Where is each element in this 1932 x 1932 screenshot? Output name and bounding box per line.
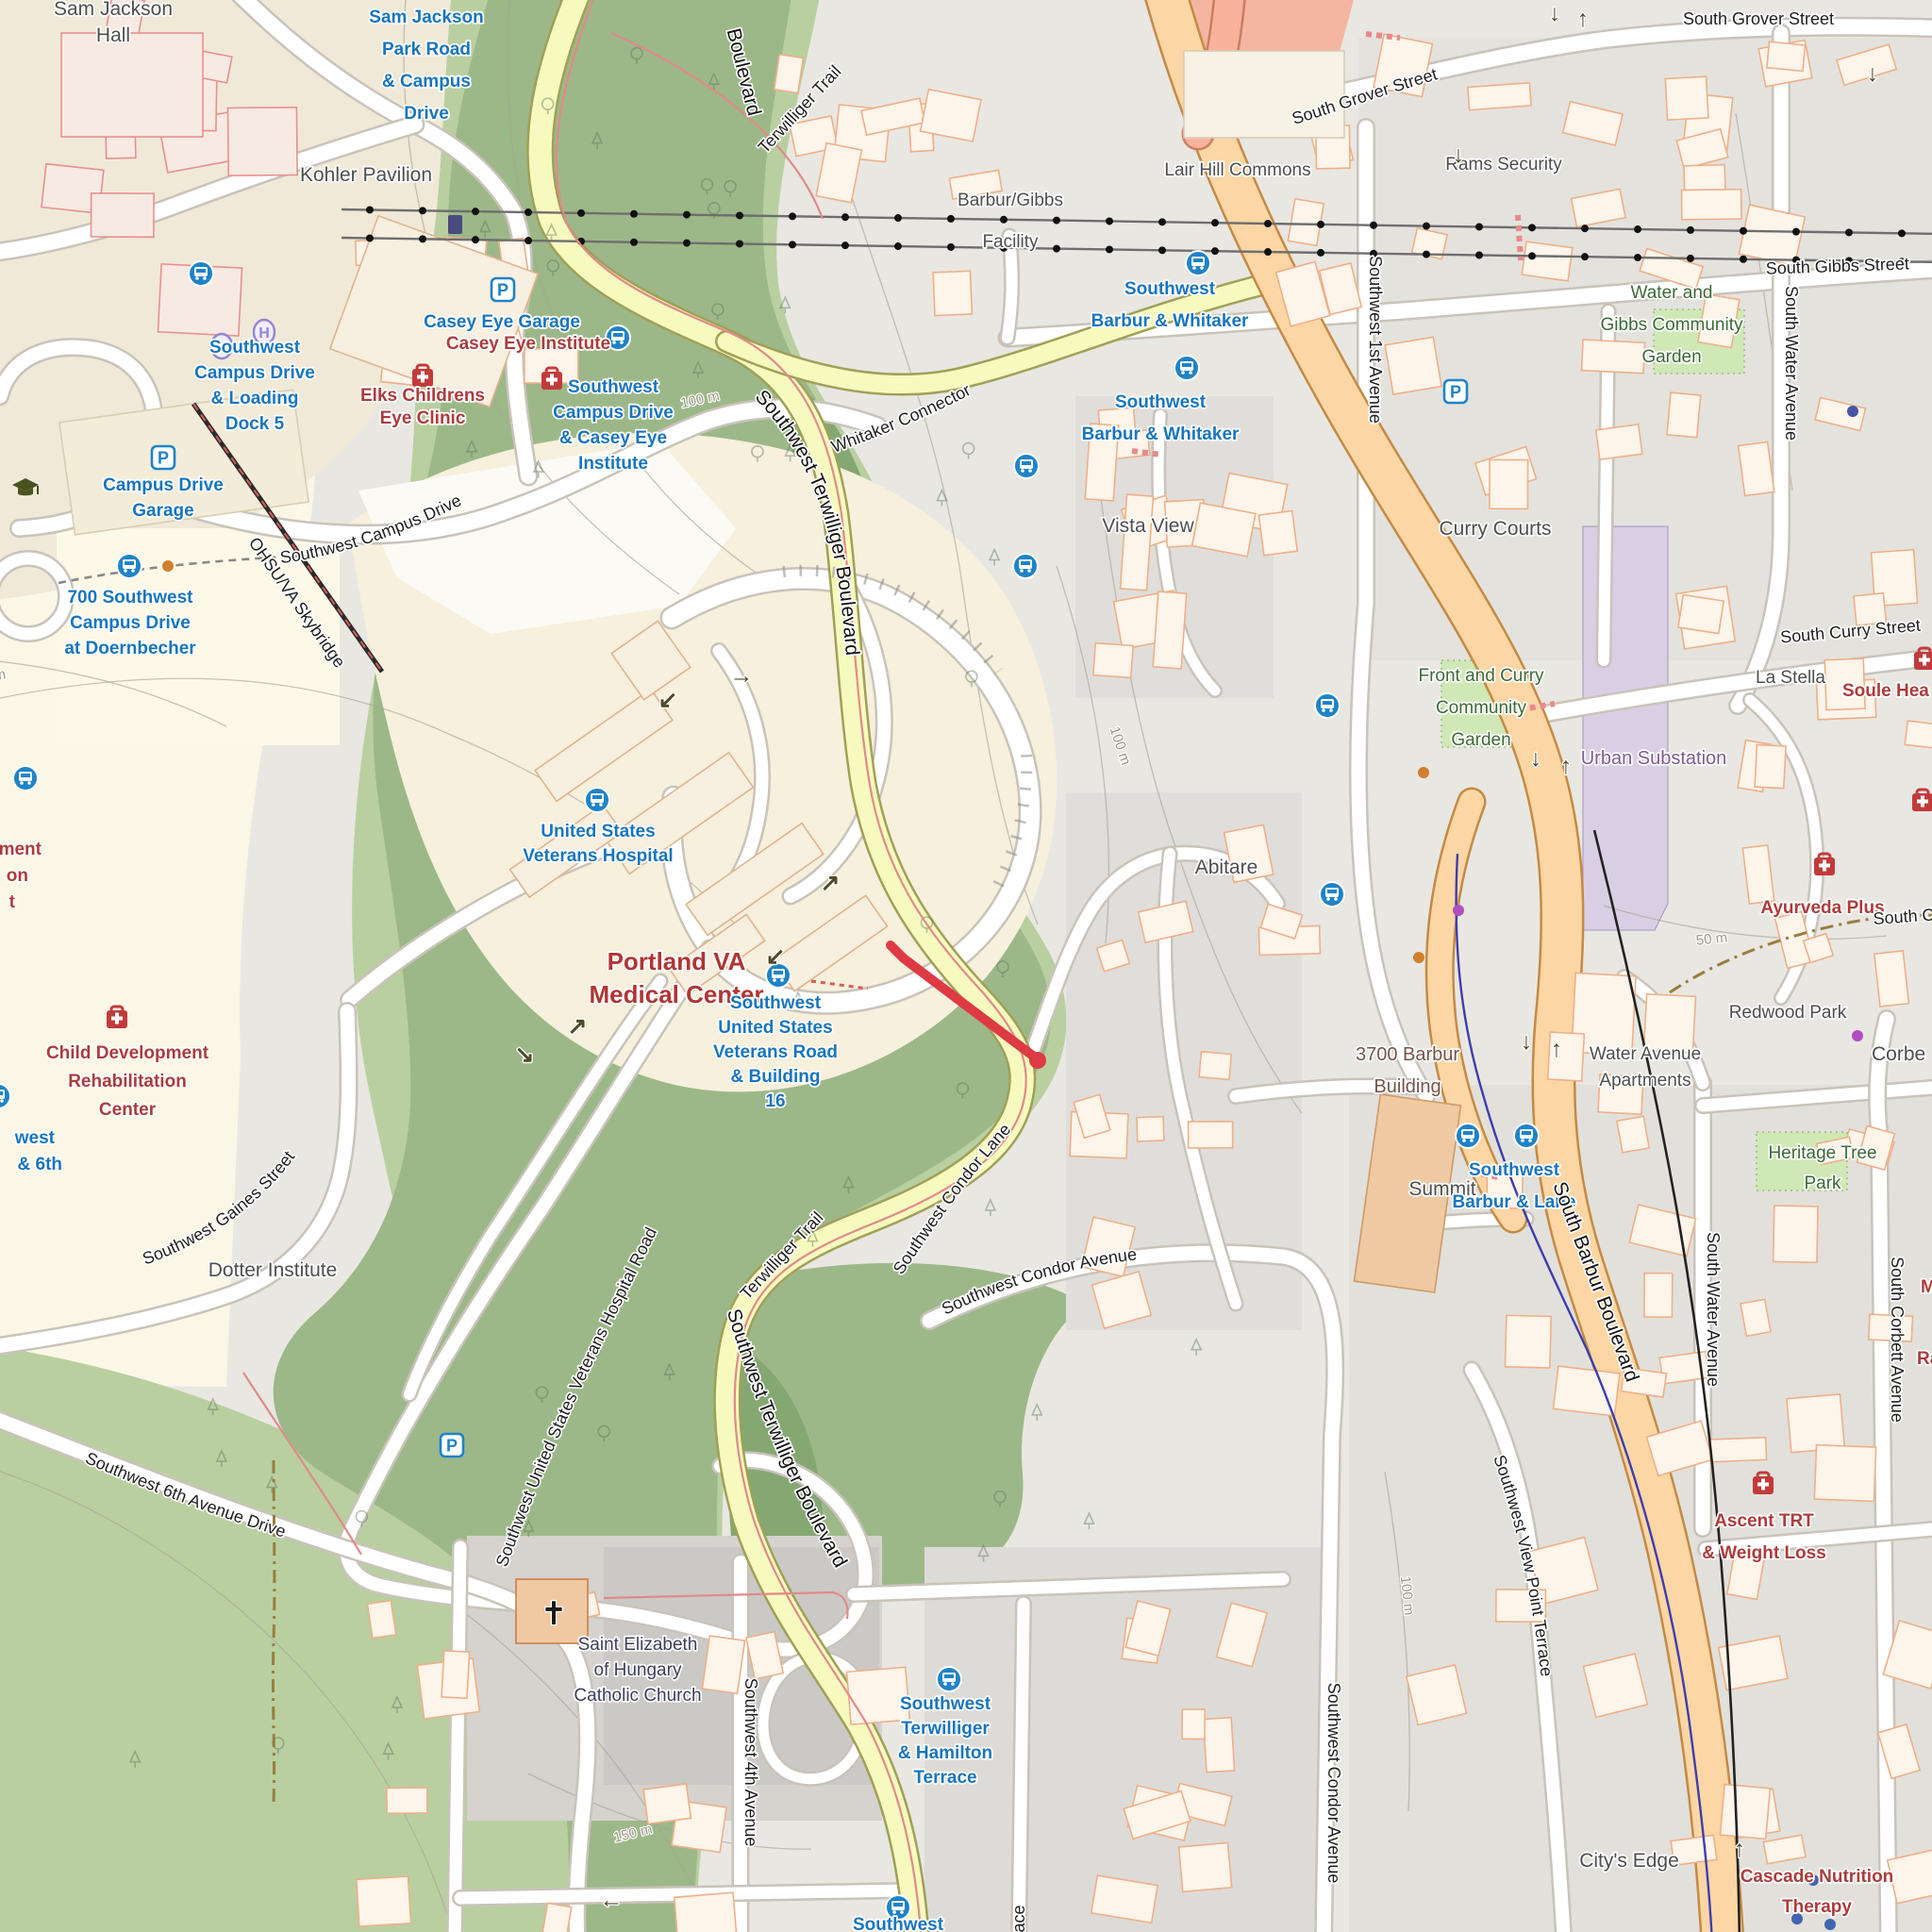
aerial-tram-station-icon: [448, 215, 462, 234]
oneway-arrow: ↙: [658, 687, 678, 713]
bus-stop-icon[interactable]: [13, 766, 38, 791]
parking-icon: P: [152, 446, 175, 469]
label-ascent-trt: Ascent TRT: [1714, 1511, 1814, 1531]
label-ment-partial: t: [9, 892, 16, 912]
label-barbur-gibbs-facility: Barbur/Gibbs: [958, 191, 1063, 210]
stop-terwilliger-hamilton[interactable]: & Hamilton: [898, 1743, 992, 1763]
street-south-c-partial: South C: [1873, 906, 1932, 928]
poi-dot: [1453, 905, 1464, 916]
stop-campus-700[interactable]: 700 Southwest: [67, 588, 193, 608]
bus-stop-icon[interactable]: [937, 1667, 961, 1691]
parking-icon: P: [441, 1434, 463, 1457]
label-front-curry: Front and Curry: [1418, 666, 1544, 686]
street-sw-4th-ave: Southwest 4th Avenue: [741, 1678, 760, 1847]
stop-sw-campus-loading[interactable]: Dock 5: [225, 414, 285, 434]
stop-barbur-whitaker-1[interactable]: Barbur & Whitaker: [1091, 311, 1249, 331]
bus-stop-icon[interactable]: [189, 261, 213, 286]
street-sw-condor-ave-s: Southwest Condor Avenue: [1324, 1683, 1343, 1884]
stop-west-6th-partial[interactable]: west: [14, 1128, 56, 1148]
label-barbur-gibbs-facility: Facility: [982, 232, 1039, 252]
label-ra-partial: Ra: [1917, 1349, 1932, 1369]
stop-campus-700[interactable]: at Doernbecher: [64, 639, 196, 658]
label-redwood-park: Redwood Park: [1729, 1003, 1847, 1023]
stop-sw-veterans-rd16[interactable]: 16: [765, 1091, 785, 1111]
poi-dot: [1852, 1030, 1863, 1041]
stop-terwilliger-hamilton[interactable]: Terrace: [913, 1768, 976, 1788]
label-child-development: Rehabilitation: [68, 1072, 187, 1091]
label-cascade-nutrition: Therapy: [1782, 1897, 1852, 1917]
label-la-stella: La Stella: [1756, 668, 1825, 688]
label-water-gibbs-garden: Garden: [1641, 347, 1701, 367]
bus-stop-icon[interactable]: [1320, 882, 1344, 907]
bus-stop-icon[interactable]: [1014, 454, 1039, 478]
label-3700-barbur: 3700 Barbur: [1356, 1044, 1459, 1065]
oneway-arrow: ↓: [1453, 142, 1465, 168]
bus-stop-icon[interactable]: [117, 554, 142, 578]
label-lair-hill-commons: Lair Hill Commons: [1164, 160, 1310, 180]
label-elks-childrens: Elks Childrens: [360, 386, 485, 406]
label-soule-partial: Soule Hea: [1842, 681, 1929, 701]
street-south-water-n: South Water Avenue: [1782, 286, 1801, 441]
oneway-arrow: ↑: [1551, 1036, 1563, 1062]
stop-barbur-whitaker-2[interactable]: Southwest: [1115, 392, 1207, 412]
stop-us-veterans-hospital[interactable]: Veterans Hospital: [523, 846, 673, 866]
parking-icon: P: [1444, 380, 1467, 403]
label-child-development: Center: [99, 1100, 157, 1120]
svg-text:P: P: [158, 449, 169, 468]
svg-text:P: P: [446, 1437, 458, 1456]
label-water-ave-apts: Water Avenue: [1590, 1044, 1701, 1064]
stop-bottom-partial[interactable]: Southwest: [853, 1915, 944, 1932]
oneway-arrow: ↓: [1867, 60, 1879, 87]
stop-sam-jackson-park[interactable]: Drive: [404, 104, 449, 124]
stop-campus-drive-garage[interactable]: Campus Drive: [103, 475, 224, 495]
stop-sw-campus-loading[interactable]: Campus Drive: [194, 363, 315, 383]
poi-dot: [1824, 1919, 1836, 1930]
street-south-grover: South Grover Street: [1683, 9, 1834, 28]
oneway-arrow: ↓: [1521, 1028, 1533, 1055]
stop-sw-veterans-rd16[interactable]: & Building: [731, 1067, 821, 1087]
label-citys-edge: City's Edge: [1579, 1850, 1679, 1872]
stop-terwilliger-hamilton[interactable]: Southwest: [900, 1694, 991, 1714]
label-3700-barbur: Building: [1374, 1076, 1441, 1097]
street-south-corbett: South Corbett Avenue: [1888, 1257, 1907, 1423]
bus-stop-icon[interactable]: [1186, 251, 1210, 275]
map-canvas[interactable]: PPPPHH✝ Sam Jackson Hall Sam Jackson Par…: [0, 0, 1932, 1932]
stop-sw-veterans-rd16[interactable]: Southwest: [730, 993, 822, 1013]
stop-sam-jackson-park[interactable]: Sam Jackson: [369, 8, 483, 27]
label-water-ave-apts: Apartments: [1599, 1071, 1690, 1091]
parking-icon: P: [491, 278, 514, 301]
stop-sw-veterans-rd16[interactable]: Veterans Road: [713, 1042, 838, 1062]
label-sam-jackson-hall: Sam Jackson: [54, 0, 173, 20]
label-curry-courts: Curry Courts: [1439, 518, 1551, 540]
street-terrace-partial: ace: [1009, 1905, 1028, 1932]
label-vista-view: Vista View: [1102, 515, 1194, 537]
stop-campus-drive-garage[interactable]: Garage: [132, 501, 193, 521]
bus-stop-icon[interactable]: [1013, 554, 1038, 578]
label-abitare: Abitare: [1195, 857, 1258, 878]
label-urban-substation: Urban Substation: [1581, 748, 1727, 769]
oneway-arrow: ↑: [1734, 1836, 1746, 1862]
bus-stop-icon[interactable]: [1174, 356, 1199, 380]
stop-barbur-whitaker-1[interactable]: Southwest: [1124, 279, 1216, 299]
oneway-arrow: ↑: [1577, 6, 1590, 32]
street-south-water-s: South Water Avenue: [1704, 1232, 1723, 1387]
oneway-arrow: ↙: [766, 943, 786, 970]
street-sw-1st-ave: Southwest 1st Avenue: [1366, 256, 1385, 424]
svg-text:P: P: [497, 281, 508, 300]
label-dotter-institute: Dotter Institute: [208, 1259, 338, 1281]
stop-campus-700[interactable]: Campus Drive: [70, 613, 191, 633]
label-elks-childrens: Eye Clinic: [380, 408, 466, 428]
oneway-arrow: ←: [600, 1887, 624, 1913]
label-ayurveda: Ayurveda Plus: [1760, 898, 1884, 918]
label-saint-elizabeth: Catholic Church: [574, 1686, 701, 1706]
stop-sw-veterans-rd16[interactable]: United States: [718, 1018, 832, 1038]
stop-sw-campus-casey[interactable]: Southwest: [568, 377, 659, 397]
label-ment-partial: on: [7, 866, 28, 886]
stop-sw-campus-loading[interactable]: & Loading: [211, 389, 299, 408]
label-saint-elizabeth: of Hungary: [594, 1660, 682, 1680]
oneway-arrow: ↑: [1560, 753, 1573, 779]
stop-terwilliger-hamilton[interactable]: Terwilliger: [901, 1719, 990, 1739]
label-front-curry: Community: [1436, 698, 1527, 718]
map-base-layer: PPPPHH✝ Sam Jackson Hall Sam Jackson Par…: [0, 0, 1932, 1932]
label-ment-partial: ment: [0, 840, 42, 859]
stop-casey-eye-garage[interactable]: Casey Eye Garage: [424, 312, 580, 332]
label-casey-eye-institute: Casey Eye Institute: [446, 334, 610, 354]
poi-dot: [1418, 767, 1429, 778]
stop-sam-jackson-park[interactable]: & Campus: [382, 72, 471, 92]
stop-sw-campus-casey[interactable]: Institute: [578, 454, 648, 474]
stop-us-veterans-hospital[interactable]: United States: [541, 822, 655, 841]
svg-text:P: P: [1450, 383, 1461, 402]
stop-sw-campus-loading[interactable]: Southwest: [209, 338, 301, 358]
oneway-arrow: ↓: [1549, 0, 1561, 26]
oneway-arrow: ↘: [515, 1041, 535, 1068]
contour-label-50m: 50 m: [1695, 929, 1728, 948]
label-heritage-tree: Heritage Tree: [1768, 1143, 1876, 1163]
bus-stop-icon[interactable]: [1315, 693, 1340, 718]
stop-sw-campus-casey[interactable]: Campus Drive: [553, 403, 674, 423]
label-heritage-tree: Park: [1804, 1174, 1841, 1193]
label-child-development: Child Development: [46, 1043, 209, 1063]
oneway-arrow: →: [730, 662, 754, 689]
oneway-arrow: ↗: [568, 1013, 588, 1040]
label-sam-jackson-hall: Hall: [96, 25, 130, 46]
oneway-arrow: ↗: [821, 870, 841, 896]
label-water-gibbs-garden: Water and: [1631, 283, 1713, 303]
label-m-partial: M: [1921, 1277, 1932, 1297]
label-saint-elizabeth: Saint Elizabeth: [578, 1635, 698, 1655]
stop-barbur-lane[interactable]: Southwest: [1469, 1160, 1560, 1180]
label-front-curry: Garden: [1451, 730, 1510, 750]
poi-dot: [1847, 406, 1858, 417]
label-kohler-pavilion: Kohler Pavilion: [300, 164, 432, 186]
label-portland-va: Portland VA: [608, 947, 746, 975]
poi-dot: [162, 560, 174, 572]
stop-west-6th-partial[interactable]: & 6th: [18, 1155, 63, 1174]
label-water-gibbs-garden: Gibbs Community: [1601, 315, 1743, 335]
stop-sam-jackson-park[interactable]: Park Road: [382, 40, 471, 59]
label-ascent-trt: & Weight Loss: [1702, 1543, 1826, 1563]
label-cascade-nutrition: Cascade Nutrition: [1740, 1867, 1894, 1887]
bus-stop-icon[interactable]: [585, 788, 609, 812]
stop-sw-campus-casey[interactable]: & Casey Eye: [559, 428, 667, 448]
bus-stop-icon[interactable]: [1456, 1124, 1480, 1148]
label-corbe-partial: Corbe: [1872, 1043, 1925, 1065]
oneway-arrow: ↓: [1530, 745, 1542, 772]
bus-stop-icon[interactable]: [1514, 1124, 1539, 1148]
christian-cross-icon: ✝: [541, 1596, 568, 1632]
stop-barbur-whitaker-2[interactable]: Barbur & Whitaker: [1082, 425, 1240, 444]
poi-dot: [1413, 952, 1424, 963]
